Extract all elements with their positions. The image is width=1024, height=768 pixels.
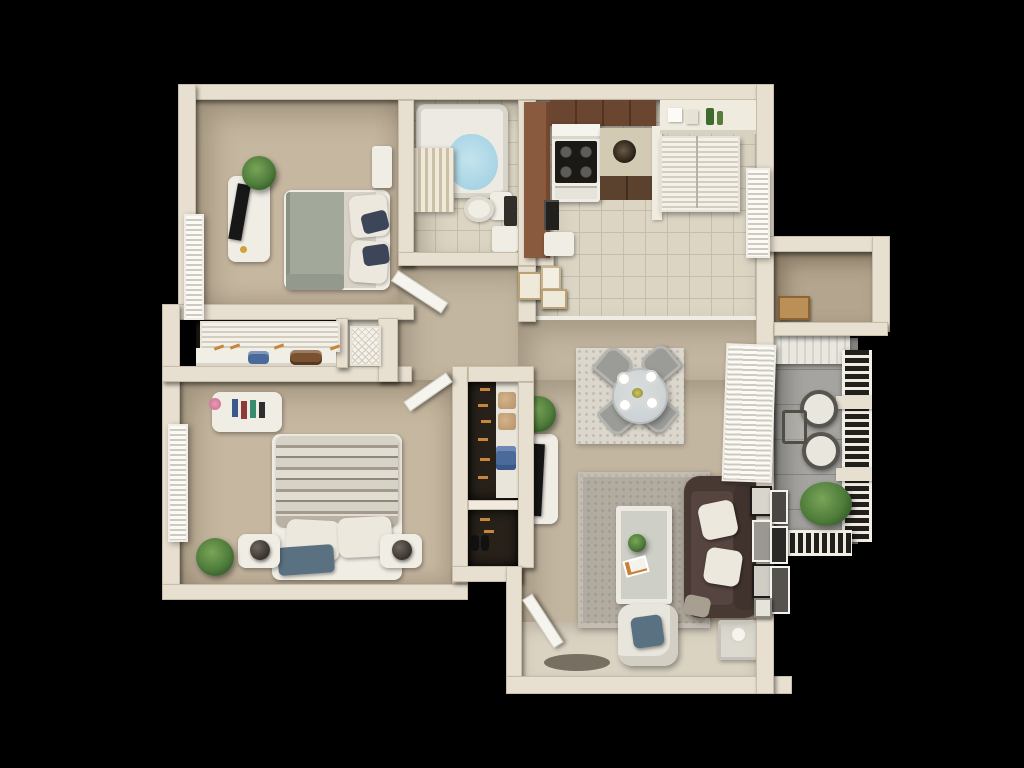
- wall-bedroom2-bottom: [162, 584, 468, 600]
- wall-bottom: [506, 676, 792, 694]
- stove-hood: [552, 124, 600, 139]
- gallery-frame-6: [770, 566, 790, 614]
- gallery-frame-7: [754, 598, 772, 618]
- small-closet-lattice-door: [350, 326, 381, 366]
- bedroom2-plant: [196, 538, 234, 576]
- utility-louver-door-gap: [696, 136, 698, 208]
- kitchen-sink-cabinet: [544, 232, 574, 256]
- balcony-chair-2: [802, 432, 840, 470]
- bedroom2-dresser: [212, 392, 282, 432]
- gallery-frame-3: [752, 520, 772, 562]
- bedroom1-nightstand: [372, 146, 392, 188]
- gallery-frame-1: [750, 486, 772, 516]
- wall-bedroom2-right: [452, 366, 468, 584]
- dining-plate-2: [644, 370, 658, 384]
- hallway-frame-1: [518, 272, 542, 300]
- kitchen-counter-decor: [613, 140, 636, 163]
- bedroom2-duvet-pattern: [276, 436, 398, 524]
- storage-box: [778, 296, 810, 320]
- bedroom2-lamp-right: [392, 540, 412, 560]
- bathroom-vanity: [492, 226, 518, 252]
- bathroom-hamper: [504, 196, 517, 226]
- hanger-tick-7: [480, 518, 490, 521]
- hall-closet-blue-shirt: [496, 446, 516, 470]
- stove-cooktop: [555, 141, 597, 183]
- window-dining-north: [746, 168, 770, 258]
- floor-plan-scene: [0, 0, 1024, 768]
- patio-door-blinds: [722, 343, 777, 483]
- hanger-tick-2: [478, 404, 488, 407]
- bedroom1-console-decor: [240, 246, 247, 253]
- hanger-tick-8: [484, 530, 494, 533]
- closet-shoes-right: [481, 535, 489, 551]
- pantry-item-bottle-2: [717, 111, 723, 125]
- bedroom2-flowers: [209, 398, 221, 410]
- wall-hall-closet-north: [468, 366, 534, 382]
- bedroom2-lamp-left: [250, 540, 270, 560]
- coffee-table-plant: [628, 534, 646, 552]
- sofa-pillow-1: [697, 499, 740, 542]
- closet-shoes-left: [471, 535, 479, 551]
- gallery-frame-4: [770, 526, 788, 564]
- utility-louver-doors: [660, 136, 740, 212]
- bedroom2-books-dark: [259, 402, 265, 418]
- bedroom2-books-red: [241, 401, 247, 419]
- hanger-tick-6: [478, 476, 488, 479]
- bedroom1-navy-pillow-2: [362, 243, 391, 266]
- dining-plate-1: [617, 372, 631, 386]
- hanger-tick-5: [480, 458, 490, 461]
- hallway-frame-2: [541, 266, 561, 290]
- sofa-pillow-2: [702, 546, 743, 587]
- gallery-frame-2: [770, 490, 788, 524]
- wall-storage-bottom: [774, 322, 888, 336]
- closet-bag-brown: [290, 350, 322, 365]
- pantry-item-bottle-1: [706, 108, 714, 125]
- balcony-table: [782, 410, 807, 444]
- wall-hallway-west: [378, 318, 398, 382]
- shower-curtain: [414, 148, 454, 212]
- wall-bathroom-left: [398, 100, 414, 266]
- pantry-item-box-2: [686, 110, 698, 124]
- bedroom1-plant: [242, 156, 276, 190]
- bedroom2-books-blue: [232, 399, 238, 417]
- pantry-item-box-1: [668, 108, 682, 122]
- stove-oven-door: [555, 186, 597, 199]
- wall-bedroom2-top: [162, 366, 412, 382]
- wall-hall-closet-shelf-divider: [468, 500, 518, 510]
- wall-top: [178, 84, 772, 100]
- balcony-rail-cap-1: [836, 396, 872, 409]
- wall-hall-closet-east: [518, 382, 534, 568]
- dining-plate-3: [618, 398, 632, 412]
- balcony-ceiling-planks: [774, 336, 850, 364]
- bathtub-water: [448, 134, 498, 190]
- window-bedroom2: [168, 424, 188, 542]
- entry-mat: [544, 654, 610, 671]
- bedroom1-blanket-fold: [286, 274, 344, 290]
- accent-chair-pillow: [630, 614, 665, 649]
- balcony-plant: [800, 482, 852, 526]
- side-table-lamp: [732, 628, 745, 641]
- closet-bag-blue: [248, 351, 269, 364]
- toilet-bowl: [464, 196, 494, 222]
- balcony-rail-cap-2: [836, 468, 872, 481]
- hall-closet-basket-1: [498, 392, 516, 409]
- wall-storage-right: [872, 236, 890, 332]
- bedroom2-blue-throw: [277, 544, 335, 576]
- kitchen-black-appliance: [544, 200, 559, 230]
- dining-centerpiece: [632, 388, 643, 398]
- kitchen-upper-cabinets: [550, 100, 656, 126]
- hanger-tick-4: [478, 438, 488, 441]
- window-bedroom1: [184, 214, 204, 320]
- wall-entry-left: [506, 566, 522, 694]
- wall-storage-top: [756, 236, 888, 252]
- hallway-frame-3: [541, 289, 567, 309]
- hanger-tick-3: [481, 420, 491, 423]
- hanger-tick-1: [480, 388, 490, 391]
- bedroom2-books-teal: [250, 400, 256, 418]
- kitchen-lower-cabinets-right: [600, 176, 656, 200]
- hall-closet-basket-2: [498, 413, 516, 430]
- dining-plate-4: [645, 396, 659, 410]
